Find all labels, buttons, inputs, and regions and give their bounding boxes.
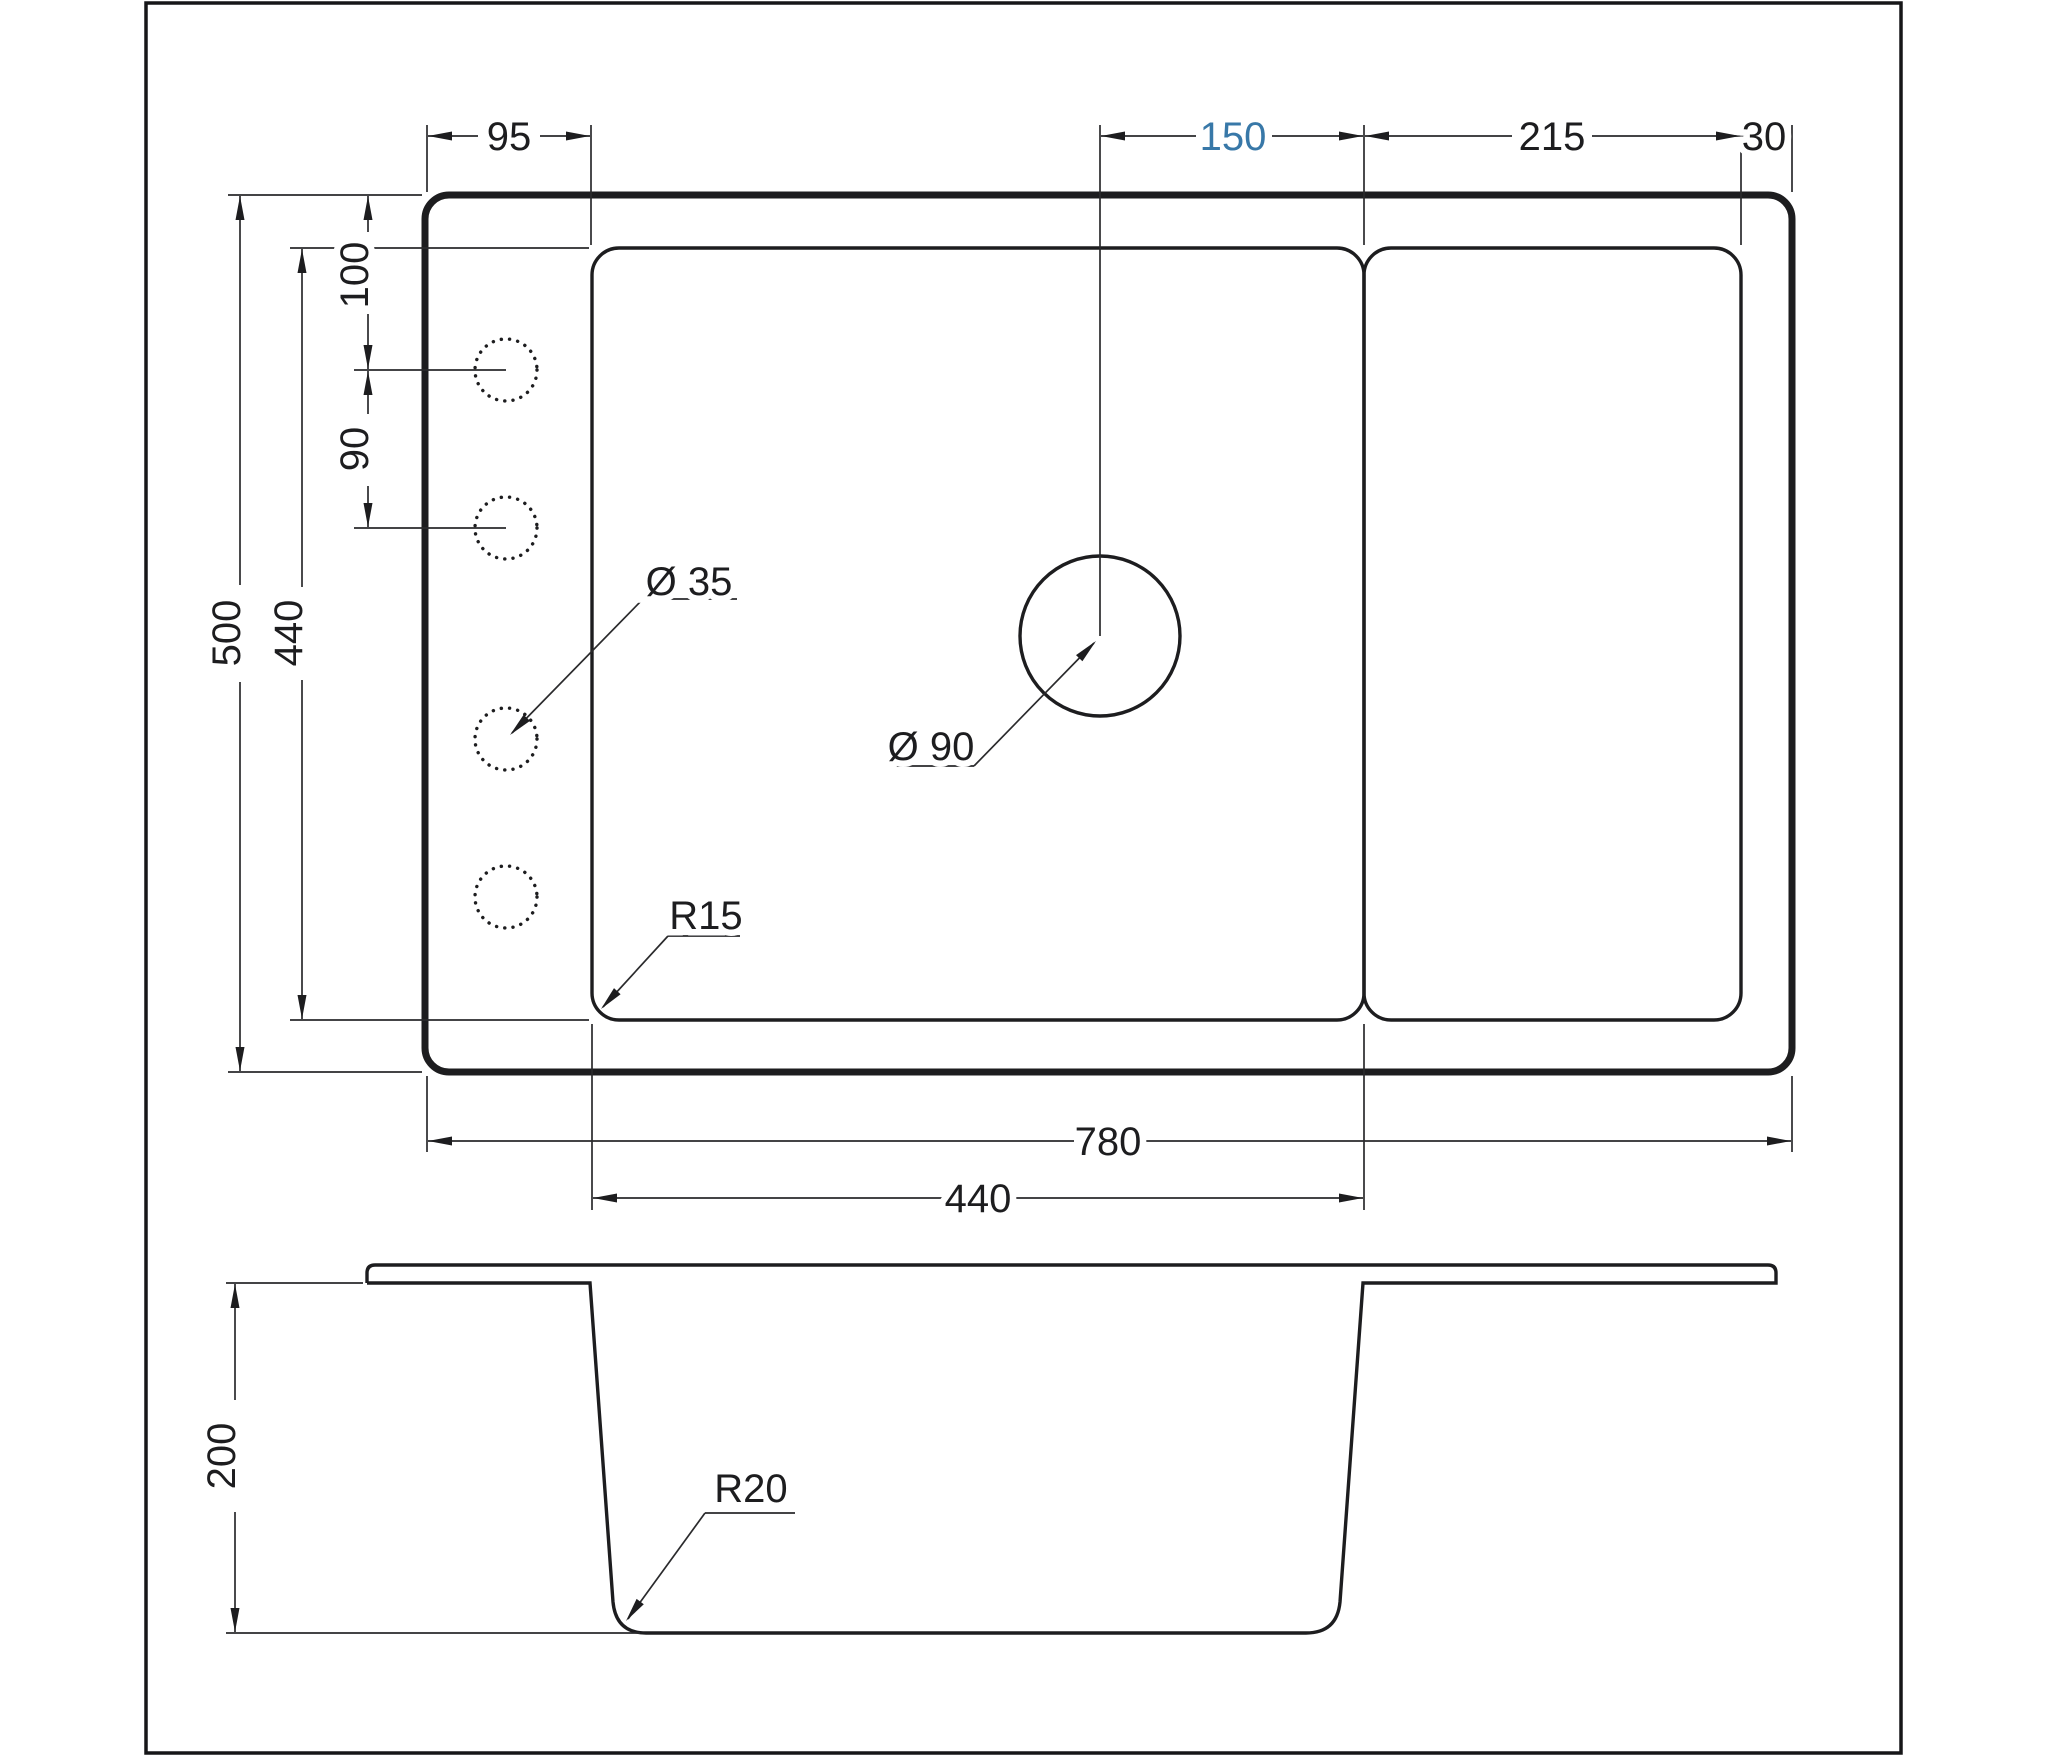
label-hole-diameter: Ø 35 — [646, 560, 733, 604]
dim-bowl-height: 200 — [200, 1423, 244, 1490]
label-bottom-radius: R20 — [714, 1467, 787, 1511]
dim-right-margin: 30 — [1742, 115, 1787, 159]
dim-hole-spacing: 90 — [333, 427, 377, 472]
dim-top-to-hole1: 100 — [333, 242, 377, 309]
dim-rim-to-bowl-left: 95 — [487, 115, 532, 159]
dim-overall-depth: 500 — [205, 600, 249, 667]
dim-faucet-to-bowl-right: 150 — [1200, 115, 1267, 159]
dim-bowl-width: 440 — [945, 1177, 1012, 1221]
dim-overall-width: 780 — [1075, 1120, 1142, 1164]
label-corner-radius: R15 — [669, 894, 742, 938]
drawing-border-frame — [146, 3, 1901, 1753]
technical-drawing-canvas: 95 150 215 30 500 440 100 90 780 440 Ø 3… — [0, 0, 2048, 1757]
drawing-page: 95 150 215 30 500 440 100 90 780 440 Ø 3… — [0, 0, 2048, 1757]
dim-bowl-depth: 440 — [267, 600, 311, 667]
dim-drainboard-width: 215 — [1519, 115, 1586, 159]
label-faucet-diameter: Ø 90 — [888, 725, 975, 769]
